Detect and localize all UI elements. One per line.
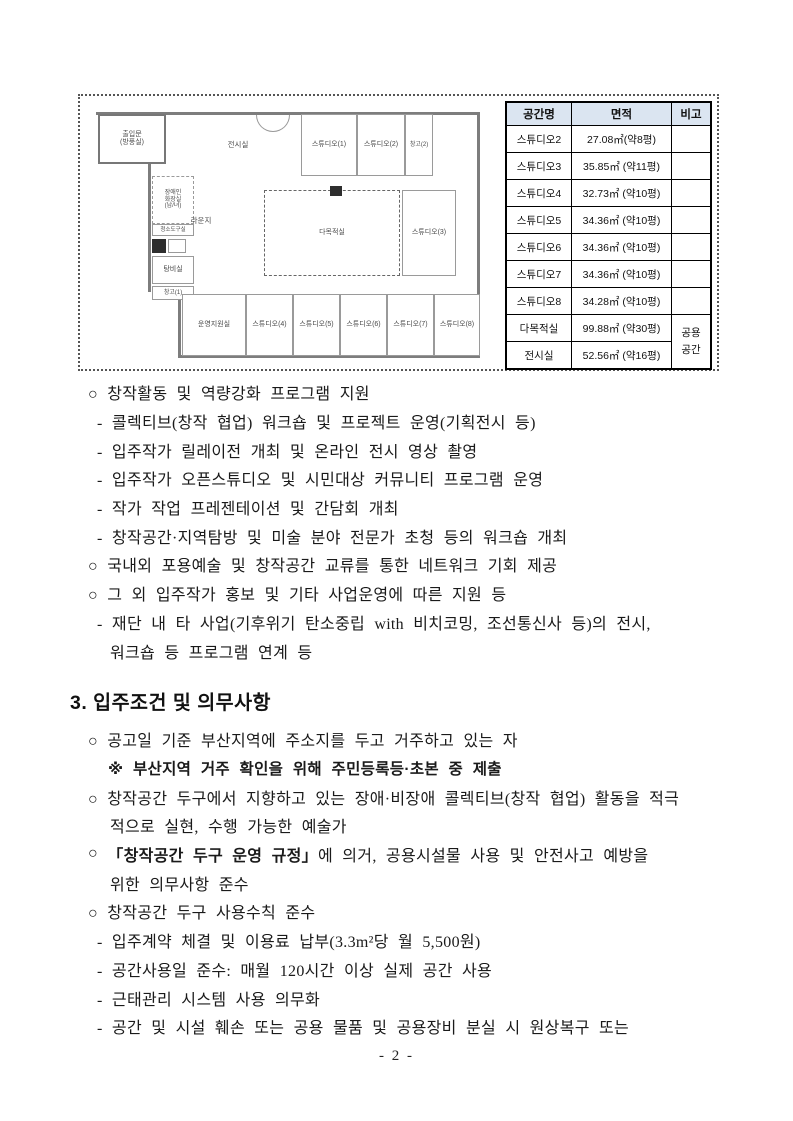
room-entrance-label: 출입문 (방풍실) xyxy=(120,131,144,147)
cell-area: 52.56㎡ (약16평) xyxy=(572,342,672,370)
table-row: 스튜디오6 34.36㎡ (약10평) xyxy=(506,234,711,261)
bullet-line: ○ 창작활동 및 역량강화 프로그램 지원 xyxy=(0,378,793,407)
room-lounge-label: 라운지 xyxy=(191,215,212,226)
cell-note-shared-space: 공용 공간 xyxy=(672,315,712,370)
cell-note xyxy=(672,261,712,288)
cell-space: 스튜디오3 xyxy=(506,153,572,180)
floorplan-figure: 출입문 (방풍실) 전시실 스튜디오(1) 스튜디오(2) 창고(2) 장애인 … xyxy=(78,94,719,371)
column-mark-icon xyxy=(330,186,342,196)
room-studio1-label: 스튜디오(1) xyxy=(312,141,346,149)
cell-note xyxy=(672,126,712,153)
submission-note-line: ※ 부산지역 거주 확인을 위해 주민등록등·초본 중 제출 xyxy=(0,754,793,783)
sub-bullet-line: - 콜렉티브(창작 협업) 워크숍 및 프로젝트 운영(기획전시 등) xyxy=(0,407,793,436)
cell-area: 34.36㎡ (약10평) xyxy=(572,261,672,288)
room-exhibition-label: 전시실 xyxy=(228,139,249,150)
cell-area: 35.85㎡ (약11평) xyxy=(572,153,672,180)
cell-note xyxy=(672,180,712,207)
continuation-line: 워크숍 등 프로그램 연계 등 xyxy=(0,636,793,665)
sub-bullet-line: - 근태관리 시스템 사용 의무화 xyxy=(0,983,793,1012)
cell-area: 99.88㎡ (약30평) xyxy=(572,315,672,342)
room-studio6-label: 스튜디오(6) xyxy=(346,321,380,329)
support-program-list: ○ 창작활동 및 역량강화 프로그램 지원 - 콜렉티브(창작 협업) 워크숍 … xyxy=(0,378,793,665)
document-page: { "figure": { "floorplan": { "rooms": { … xyxy=(0,0,793,1121)
room-studio4: 스튜디오(4) xyxy=(246,294,293,356)
room-studio7-label: 스튜디오(7) xyxy=(393,321,427,329)
cell-note xyxy=(672,207,712,234)
room-studio1: 스튜디오(1) xyxy=(301,114,357,176)
area-table: 공간명 면적 비고 스튜디오2 27.08㎡(약8평) 스튜디오3 35.85㎡… xyxy=(505,101,712,370)
room-exhibition: 전시실 xyxy=(208,134,268,154)
cell-area: 34.36㎡ (약10평) xyxy=(572,207,672,234)
room-studio2: 스튜디오(2) xyxy=(357,114,405,176)
table-row: 스튜디오2 27.08㎡(약8평) xyxy=(506,126,711,153)
section-heading: 3. 입주조건 및 의무사항 xyxy=(70,686,271,715)
cell-space: 스튜디오6 xyxy=(506,234,572,261)
room-restroom-label: 장애인 화장실 (남/녀) xyxy=(165,190,182,211)
room-multipurpose: 다목적실 xyxy=(264,190,400,276)
bullet-line: ○ 국내외 포용예술 및 창작공간 교류를 통한 네트워크 기회 제공 xyxy=(0,550,793,579)
sub-bullet-line: - 창작공간·지역탐방 및 미술 분야 전문가 초청 등의 워크숍 개최 xyxy=(0,521,793,550)
cell-space: 스튜디오8 xyxy=(506,288,572,315)
room-ops: 운영지원실 xyxy=(182,294,246,356)
cell-space: 스튜디오4 xyxy=(506,180,572,207)
cell-note xyxy=(672,288,712,315)
sub-bullet-line: - 입주작가 릴레이전 개최 및 온라인 전시 영상 촬영 xyxy=(0,435,793,464)
room-pantry: 탕비실 xyxy=(152,256,194,284)
bullet-line: ○ 공고일 기준 부산지역에 주소지를 두고 거주하고 있는 자 xyxy=(0,725,793,754)
utility-block-icon xyxy=(152,239,166,253)
room-studio3: 스튜디오(3) xyxy=(402,190,456,276)
continuation-line: 위한 의무사항 준수 xyxy=(0,868,793,897)
sub-bullet-line: - 공간 및 시설 훼손 또는 공용 물품 및 공용장비 분실 시 원상복구 또… xyxy=(0,1012,793,1041)
room-studio4-label: 스튜디오(4) xyxy=(252,321,286,329)
col-header-note: 비고 xyxy=(672,102,712,126)
room-pantry-label: 탕비실 xyxy=(163,266,182,274)
room-studio8: 스튜디오(8) xyxy=(434,294,480,356)
table-row: 다목적실 99.88㎡ (약30평) 공용 공간 xyxy=(506,315,711,342)
table-row: 스튜디오7 34.36㎡ (약10평) xyxy=(506,261,711,288)
page-number: - 2 - xyxy=(0,1048,793,1065)
door-arc-icon xyxy=(256,115,290,132)
room-studio2-label: 스튜디오(2) xyxy=(364,141,398,149)
cell-area: 27.08㎡(약8평) xyxy=(572,126,672,153)
room-multipurpose-label: 다목적실 xyxy=(319,229,345,237)
sub-bullet-line: - 입주계약 체결 및 이용료 납부(3.3m²당 월 5,500원) xyxy=(0,926,793,955)
floor-plan: 출입문 (방풍실) 전시실 스튜디오(1) 스튜디오(2) 창고(2) 장애인 … xyxy=(86,98,488,366)
continuation-line: 적으로 실현, 수행 가능한 예술가 xyxy=(0,811,793,840)
cell-space: 다목적실 xyxy=(506,315,572,342)
room-lounge: 라운지 xyxy=(171,210,231,230)
sub-bullet-line: - 입주작가 오픈스튜디오 및 시민대상 커뮤니티 프로그램 운영 xyxy=(0,464,793,493)
table-row: 스튜디오5 34.36㎡ (약10평) xyxy=(506,207,711,234)
room-storage2-label: 창고(2) xyxy=(410,142,428,149)
room-studio5-label: 스튜디오(5) xyxy=(299,321,333,329)
cell-area: 34.28㎡ (약10평) xyxy=(572,288,672,315)
cell-space: 스튜디오5 xyxy=(506,207,572,234)
room-storage1-label: 창고(1) xyxy=(164,290,182,297)
col-header-area: 면적 xyxy=(572,102,672,126)
area-table-header-row: 공간명 면적 비고 xyxy=(506,102,711,126)
table-row: 스튜디오3 35.85㎡ (약11평) xyxy=(506,153,711,180)
room-studio3-label: 스튜디오(3) xyxy=(412,229,446,237)
cell-space: 스튜디오2 xyxy=(506,126,572,153)
room-studio6: 스튜디오(6) xyxy=(340,294,387,356)
sub-bullet-line: - 작가 작업 프레젠테이션 및 간담회 개최 xyxy=(0,493,793,522)
cell-note xyxy=(672,234,712,261)
room-studio8-label: 스튜디오(8) xyxy=(440,321,474,329)
cell-note xyxy=(672,153,712,180)
bullet-line-regulation: ○ 「창작공간 두구 운영 규정」에 의거, 공용시설물 사용 및 안전사고 예… xyxy=(0,840,793,869)
bullet-line: ○ 창작공간 두구 사용수칙 준수 xyxy=(0,897,793,926)
bullet-line: ○ 그 외 입주작가 홍보 및 기타 사업운영에 따른 지원 등 xyxy=(0,579,793,608)
table-row: 스튜디오8 34.28㎡ (약10평) xyxy=(506,288,711,315)
table-row: 스튜디오4 32.73㎡ (약10평) xyxy=(506,180,711,207)
cell-space: 스튜디오7 xyxy=(506,261,572,288)
sub-bullet-line: - 공간사용일 준수: 매월 120시간 이상 실제 공간 사용 xyxy=(0,955,793,984)
cell-area: 34.36㎡ (약10평) xyxy=(572,234,672,261)
room-storage2: 창고(2) xyxy=(405,114,433,176)
room-studio5: 스튜디오(5) xyxy=(293,294,340,356)
room-studio7: 스튜디오(7) xyxy=(387,294,434,356)
utility-room xyxy=(168,239,186,253)
wall-left-lower xyxy=(178,290,181,358)
cell-area: 32.73㎡ (약10평) xyxy=(572,180,672,207)
bullet-line: ○ 창작공간 두구에서 지향하고 있는 장애·비장애 콜렉티브(창작 협업) 활… xyxy=(0,782,793,811)
sub-bullet-line: - 재단 내 타 사업(기후위기 탄소중립 with 비치코밍, 조선통신사 등… xyxy=(0,608,793,637)
conditions-list: ○ 공고일 기준 부산지역에 주소지를 두고 거주하고 있는 자 ※ 부산지역 … xyxy=(0,725,793,1041)
wall-corridor xyxy=(148,162,151,292)
room-ops-label: 운영지원실 xyxy=(198,321,230,329)
room-entrance: 출입문 (방풍실) xyxy=(98,114,166,164)
col-header-space: 공간명 xyxy=(506,102,572,126)
cell-space: 전시실 xyxy=(506,342,572,370)
